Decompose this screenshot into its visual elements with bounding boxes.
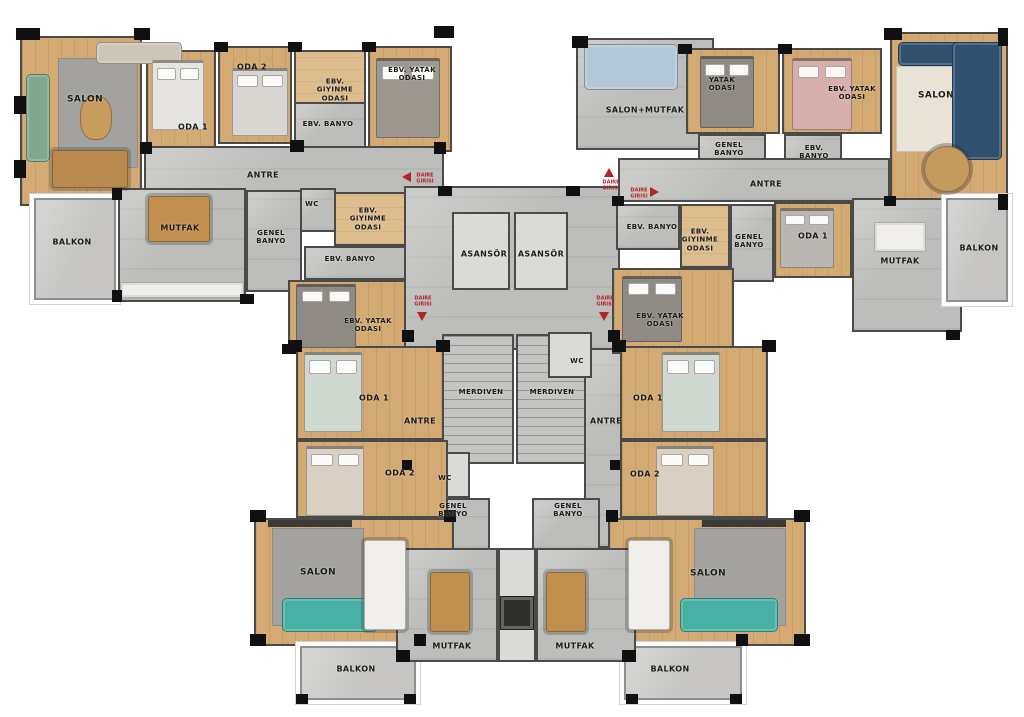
column [778, 44, 792, 54]
column [402, 330, 414, 342]
label-asansor-2: ASANSÖR [518, 249, 564, 258]
column [736, 634, 748, 646]
entry-label: DAIRE GIRISI [598, 181, 624, 192]
entry-arrow-icon [604, 168, 614, 177]
label-genel-banyo-core-left: GENEL BANYO [438, 502, 467, 519]
room-wc-core-right [548, 332, 592, 378]
label-ebv-yatak-right: EBV. YATAK ODASI [636, 312, 684, 329]
column [884, 28, 902, 40]
dining-table [546, 572, 586, 632]
label-merdiven-2: MERDIVEN [530, 388, 575, 396]
room-merdiven-1 [442, 334, 514, 464]
column [762, 340, 776, 352]
label-salon-bottom-right: SALON [690, 569, 726, 580]
room-wc-left-apt [300, 188, 336, 232]
label-oda2-top-left: ODA 2 [237, 62, 267, 71]
entry-label: DAIRE GIRISI [410, 297, 436, 308]
label-yatak-odasi-top-right: YATAK ODASI [709, 76, 736, 93]
label-mutfak-left: MUTFAK [160, 223, 199, 232]
label-mutfak-bottom-center-left: MUTFAK [432, 641, 471, 650]
column [396, 650, 410, 662]
column [436, 340, 450, 352]
column [730, 694, 742, 704]
column [612, 340, 626, 352]
label-mutfak-bottom-center-right: MUTFAK [555, 641, 594, 650]
label-merdiven-1: MERDIVEN [459, 388, 504, 396]
column [438, 186, 452, 196]
label-antre-bottom-right-wing: ANTRE [590, 416, 622, 425]
bed [232, 68, 288, 136]
label-balkon-right: BALKON [959, 243, 998, 252]
label-oda2-bottom-left: ODA 2 [385, 468, 415, 477]
column [362, 42, 376, 52]
label-genel-banyo-right: GENEL BANYO [734, 233, 763, 250]
dining-table [430, 572, 470, 632]
column [414, 634, 426, 646]
bed [304, 352, 362, 432]
dining-table [52, 150, 128, 188]
column [998, 194, 1008, 210]
sofa [584, 44, 678, 90]
label-oda1-right: ODA 1 [798, 231, 828, 240]
label-ebv-giyinme-right: EBV. GIYINME ODASI [682, 228, 718, 253]
label-ebv-giyinme-top-left: EBV. GIYINME ODASI [317, 78, 353, 103]
column [140, 142, 152, 154]
column [622, 650, 636, 662]
label-oda1-bottom-left: ODA 1 [359, 393, 389, 402]
label-ebv-banyo-right: EBV. BANYO [627, 223, 678, 231]
room-core-corridor [404, 186, 620, 350]
label-antre-bottom-left-wing: ANTRE [404, 416, 436, 425]
sofa [680, 598, 778, 632]
column [626, 694, 638, 704]
column [404, 694, 416, 704]
label-mutfak-right: MUTFAK [880, 256, 919, 265]
entry-arrow-icon [599, 312, 609, 321]
column [610, 460, 620, 470]
column [288, 42, 302, 52]
column [112, 188, 122, 200]
entry-label: DAIRE GIRISI [592, 297, 618, 308]
label-salon-far-right: SALON [918, 91, 954, 102]
column [250, 634, 266, 646]
column [946, 330, 960, 340]
column [288, 340, 302, 352]
entry-label: DAIRE GIRISI [412, 174, 438, 185]
label-salon-top-left: SALON [67, 95, 103, 106]
bed [656, 446, 714, 516]
label-wc-core-right: WC [570, 357, 584, 365]
column [112, 290, 122, 302]
column [434, 142, 446, 154]
label-ebv-giyinme-left: EBV. GIYINME ODASI [350, 207, 386, 232]
label-oda1-top-left: ODA 1 [178, 122, 208, 131]
dining-table [148, 196, 210, 242]
sofa [26, 74, 50, 162]
column [16, 28, 40, 40]
dining-table [364, 540, 406, 630]
label-balkon-bottom-right: BALKON [650, 664, 689, 673]
bed [662, 352, 720, 432]
label-wc-left-apt: WC [305, 200, 319, 208]
dining-table [628, 540, 670, 630]
label-salon-mutfak-top-right: SALON+MUTFAK [606, 105, 685, 114]
column [250, 510, 266, 522]
label-ebv-yatak-left: EBV. YATAK ODASI [344, 317, 392, 334]
label-ebv-banyo-left: EBV. BANYO [325, 255, 376, 263]
column [14, 160, 26, 178]
label-oda2-bottom-right: ODA 2 [630, 469, 660, 478]
entry-label: DAIRE GIRISI [626, 189, 652, 200]
column [14, 96, 26, 114]
bed [306, 446, 364, 516]
bed [622, 276, 682, 342]
label-genel-banyo-top-right: GENEL BANYO [714, 141, 743, 158]
label-asansor-1: ASANSÖR [461, 249, 507, 258]
column [290, 140, 304, 152]
column [566, 186, 580, 196]
column [612, 196, 624, 206]
label-antre-top-right: ANTRE [750, 179, 782, 188]
room-balkon-left [34, 198, 116, 300]
label-balkon-bottom-left: BALKON [336, 664, 375, 673]
column [572, 36, 588, 48]
round-table [924, 146, 970, 192]
label-oda1-bottom-right: ODA 1 [633, 393, 663, 402]
label-genel-banyo-left: GENEL BANYO [256, 229, 285, 246]
kitchen-island [874, 222, 926, 252]
entry-arrow-icon [417, 312, 427, 321]
column [240, 294, 254, 304]
column [794, 510, 810, 522]
column [884, 196, 896, 206]
floor-plan: SALONODA 1ODA 2EBV. GIYINME ODASIEBV. BA… [0, 0, 1024, 717]
label-genel-banyo-core-right: GENEL BANYO [553, 502, 582, 519]
entry-arrow-icon [402, 172, 411, 182]
counter [120, 282, 244, 298]
column [794, 634, 810, 646]
label-ebv-banyo-top-right: EBV. BANYO [799, 144, 828, 161]
column [296, 694, 308, 704]
sofa [952, 42, 1002, 160]
label-wc-core-left: WC [438, 474, 452, 482]
column [606, 510, 618, 522]
tv-unit [268, 520, 352, 527]
label-ebv-banyo-top-left: EBV. BANYO [303, 120, 354, 128]
label-antre-top-left: ANTRE [247, 170, 279, 179]
label-salon-bottom-left: SALON [300, 568, 336, 579]
tv-unit [702, 520, 786, 527]
label-ebv-yatak-top-right: EBV. YATAK ODASI [828, 85, 876, 102]
column [998, 28, 1008, 46]
label-ebv-yatak-top-left: EBV. YATAK ODASI [388, 66, 436, 83]
column [214, 42, 228, 52]
bed [152, 60, 204, 130]
stove [500, 596, 534, 630]
label-balkon-left: BALKON [52, 237, 91, 246]
column [434, 26, 454, 38]
column [678, 44, 692, 54]
column [134, 28, 150, 40]
